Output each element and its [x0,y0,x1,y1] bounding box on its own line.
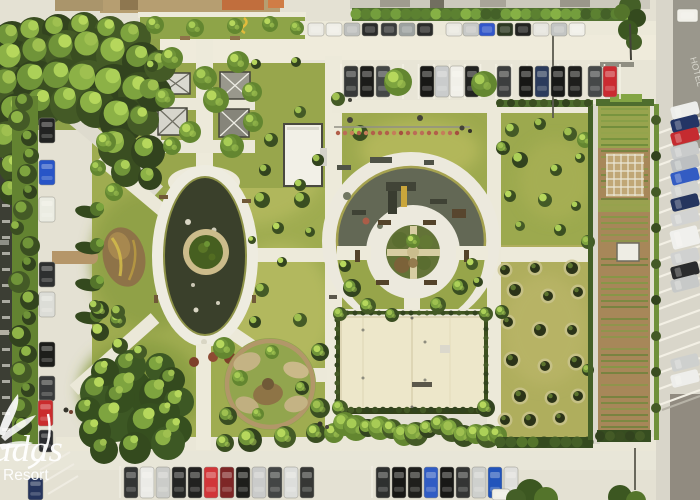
svg-text:adas: adas [0,429,63,470]
svg-text:Resort: Resort [3,467,49,484]
